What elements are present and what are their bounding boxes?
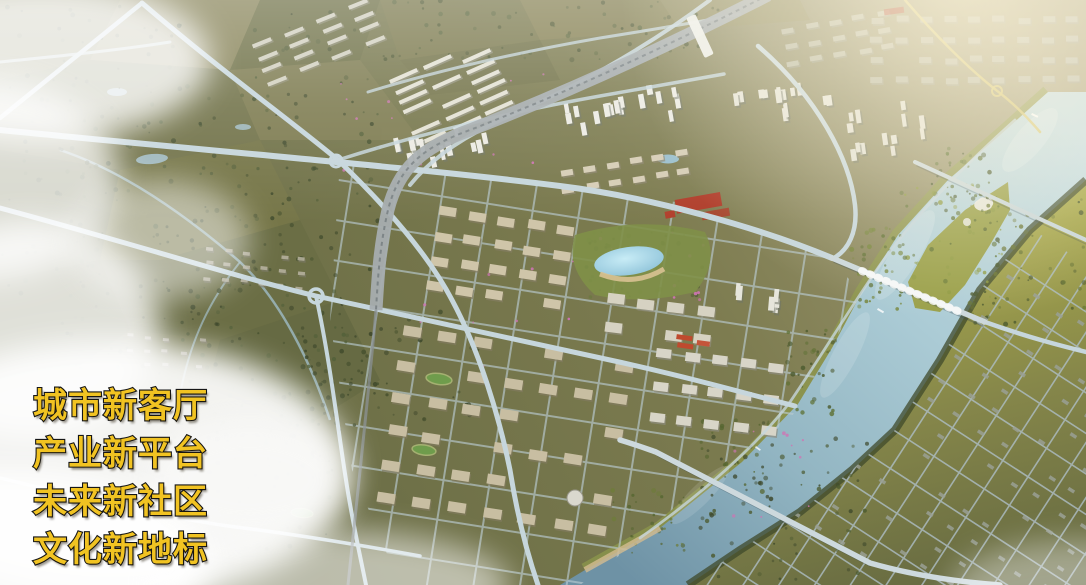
aerial-render: 城市新客厅 产业新平台 未来新社区 文化新地标	[0, 0, 1086, 585]
slogan-line-2: 产业新平台	[33, 430, 208, 478]
slogan-line-4: 文化新地标	[33, 526, 208, 574]
slogan-line-3: 未来新社区	[33, 478, 208, 526]
slogan-overlay: 城市新客厅 产业新平台 未来新社区 文化新地标	[33, 382, 208, 574]
slogan-line-1: 城市新客厅	[33, 382, 208, 430]
